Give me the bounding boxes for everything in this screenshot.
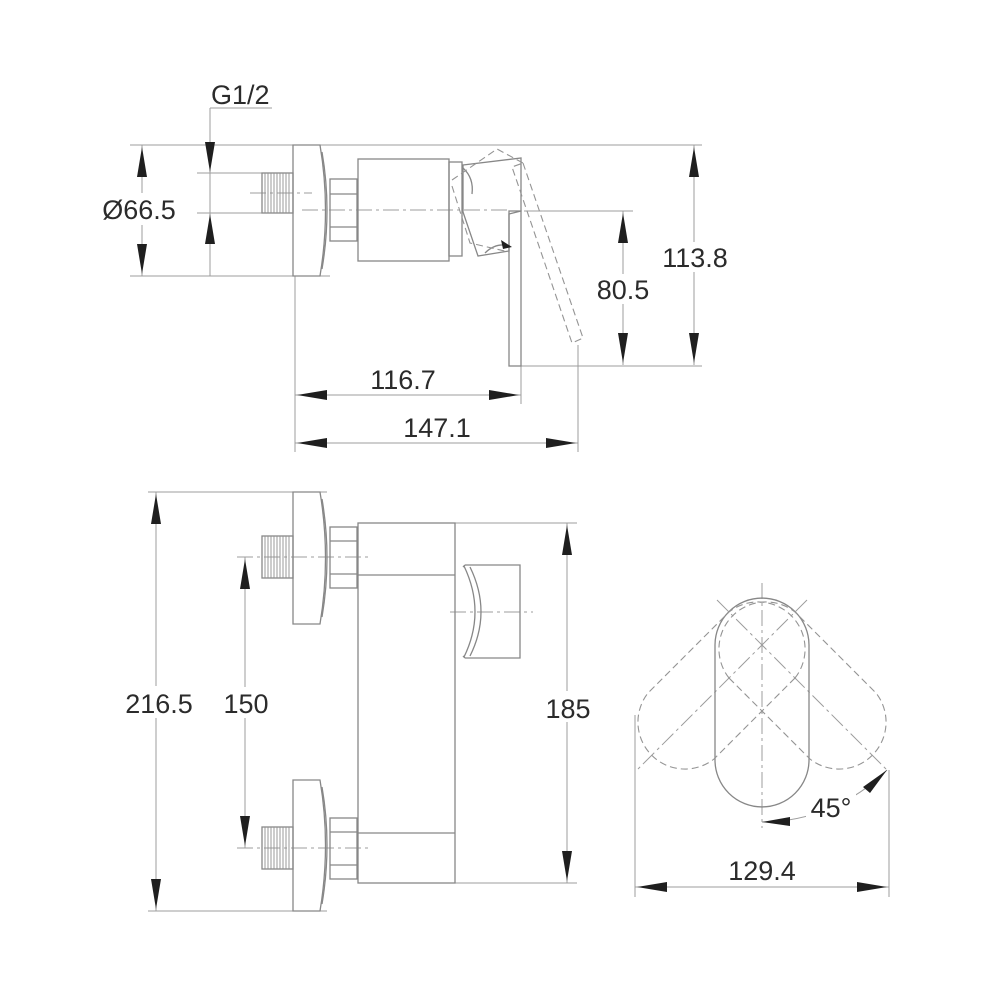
plan-handle-dashed — [452, 149, 583, 343]
dim-body-height: 185 — [545, 694, 590, 724]
plan-view: G1/2 Ø66.5 113.8 80.5 116.7 147.1 — [98, 80, 734, 452]
elevation-view: 216.5 150 185 — [116, 492, 595, 911]
elevation-body — [358, 523, 455, 883]
dim-escutcheon-diameter: Ø66.5 — [102, 195, 176, 225]
dim-total-depth: 147.1 — [403, 413, 471, 443]
dim-body-depth: 116.7 — [370, 365, 436, 395]
dim-total-height: 113.8 — [662, 243, 728, 273]
shower-mixer-dimension-drawing: G1/2 Ø66.5 113.8 80.5 116.7 147.1 — [0, 0, 1000, 1000]
dim-handle-drop: 80.5 — [597, 275, 650, 305]
rotation-view: 45° 129.4 — [635, 583, 889, 897]
dim-elevation-total-height: 216.5 — [125, 689, 193, 719]
dim-thread-size: G1/2 — [211, 80, 270, 110]
dim-inlet-spacing: 150 — [223, 689, 268, 719]
technical-drawing-page: G1/2 Ø66.5 113.8 80.5 116.7 147.1 — [0, 0, 1000, 1000]
dim-swing-width: 129.4 — [728, 856, 796, 886]
plan-cap-ring — [449, 162, 462, 256]
elevation-escutcheon-top — [293, 492, 326, 624]
elevation-escutcheon-bottom — [293, 780, 326, 911]
plan-handle-solid — [463, 158, 521, 366]
dim-handle-angle: 45° — [811, 793, 852, 823]
